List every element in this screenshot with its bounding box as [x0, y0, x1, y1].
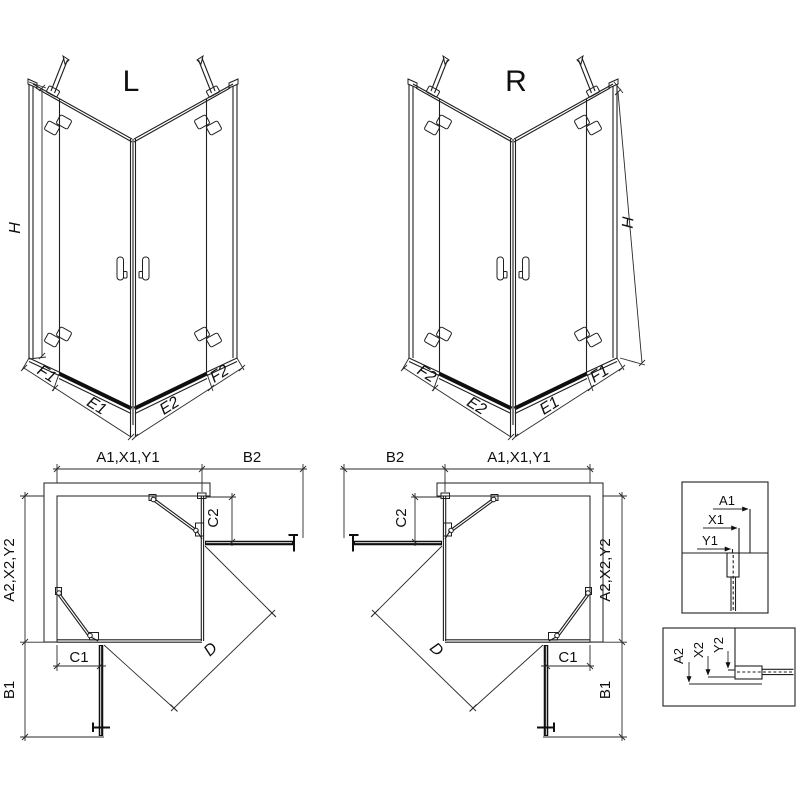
- dim-label-c2-left: C2: [205, 508, 222, 527]
- iso-geometry-right: [408, 56, 618, 437]
- iso-view-left: L H F1 E1 E2 F2: [7, 56, 245, 440]
- detail-label-y1: Y1: [702, 533, 718, 548]
- view-label-L: L: [123, 65, 140, 98]
- iso-view-right: R H F2 E2 E1 F1: [401, 56, 645, 440]
- detail-wall-profile-top: A1 X1 Y1: [682, 482, 768, 613]
- dim-label-c1-right: C1: [558, 649, 577, 666]
- detail-label-a1: A1: [719, 493, 735, 508]
- dim-label-b1-left: B1: [1, 681, 18, 699]
- shower-enclosure-diagram: L H F1 E1 E2 F2 R H F2: [0, 0, 800, 800]
- plan-geometry-left: [20, 464, 307, 741]
- detail-label-x1: X1: [708, 512, 724, 527]
- detail-label-a2: A2: [671, 648, 686, 664]
- detail-label-y2: Y2: [711, 637, 726, 653]
- dim-label-side-depth-left: A2,X2,Y2: [1, 538, 18, 601]
- dim-label-side-depth-right: A2,X2,Y2: [597, 538, 614, 601]
- dim-label-height-left: H: [7, 222, 24, 234]
- dim-label-c2-right: C2: [393, 508, 410, 527]
- technical-drawing-page: L H F1 E1 E2 F2 R H F2: [0, 0, 800, 800]
- dim-label-diagonal-left: D: [201, 639, 221, 660]
- dim-label-top-width-right: A1,X1,Y1: [487, 449, 550, 466]
- plan-geometry-right: [340, 464, 627, 741]
- plan-view-left: A1,X1,Y1 B2 C2 A2,X2,Y2 C1 B1 D: [1, 449, 307, 741]
- detail-floor-profile-bottom: A2 X2 Y2: [663, 628, 795, 706]
- iso-geometry-left: [28, 56, 238, 437]
- dim-label-height-right: H: [620, 216, 638, 229]
- view-label-R: R: [505, 65, 527, 98]
- detail-label-x2: X2: [691, 642, 706, 658]
- dim-label-b1-right: B1: [597, 681, 614, 699]
- plan-view-right: B2 A1,X1,Y1 C2 A2,X2,Y2 C1 B1 D: [340, 449, 627, 741]
- dim-label-b2-right: B2: [386, 449, 404, 466]
- dim-label-top-width-left: A1,X1,Y1: [96, 449, 159, 466]
- dim-label-c1-left: C1: [69, 649, 88, 666]
- dim-label-diagonal-right: D: [426, 640, 446, 661]
- dim-label-b2-left: B2: [243, 449, 261, 466]
